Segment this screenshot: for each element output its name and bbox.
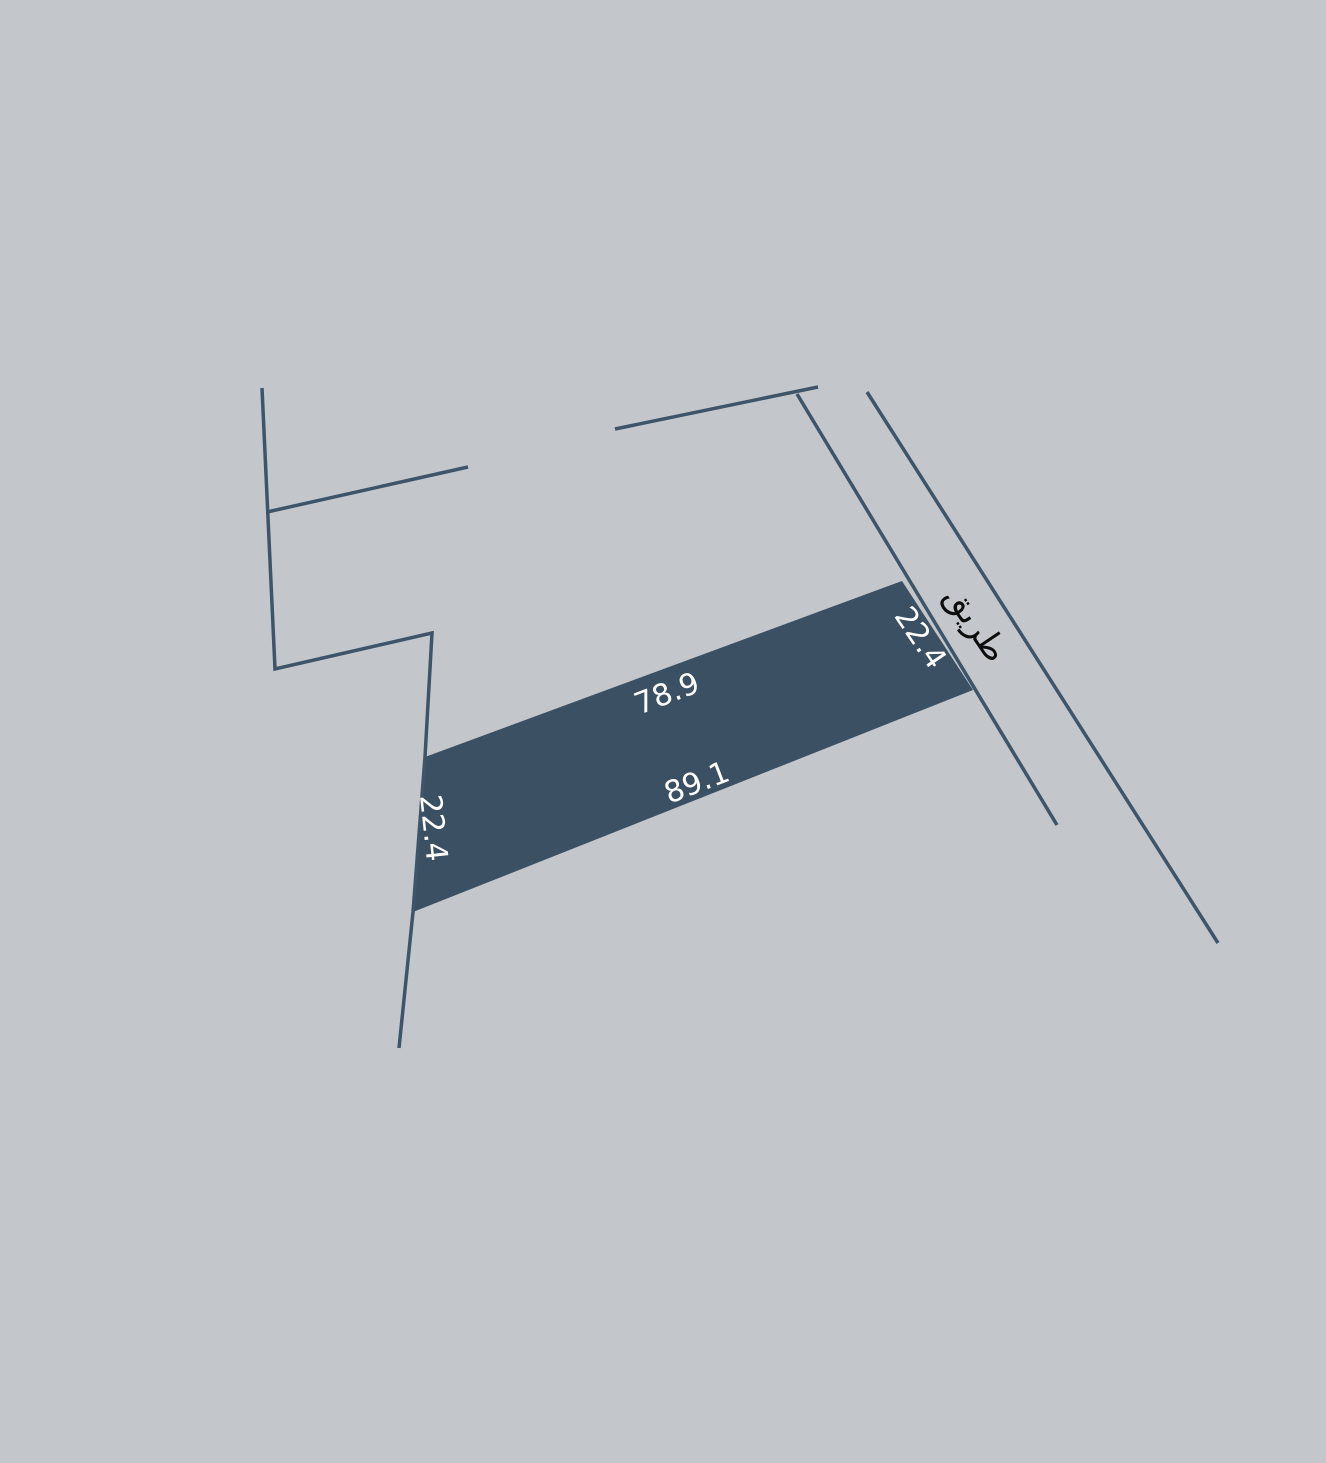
map-canvas: 78.989.122.422.4طريق — [0, 0, 1326, 1463]
cadastral-map: 78.989.122.422.4طريق — [0, 0, 1326, 1463]
parcel-width-left: 22.4 — [412, 793, 454, 863]
